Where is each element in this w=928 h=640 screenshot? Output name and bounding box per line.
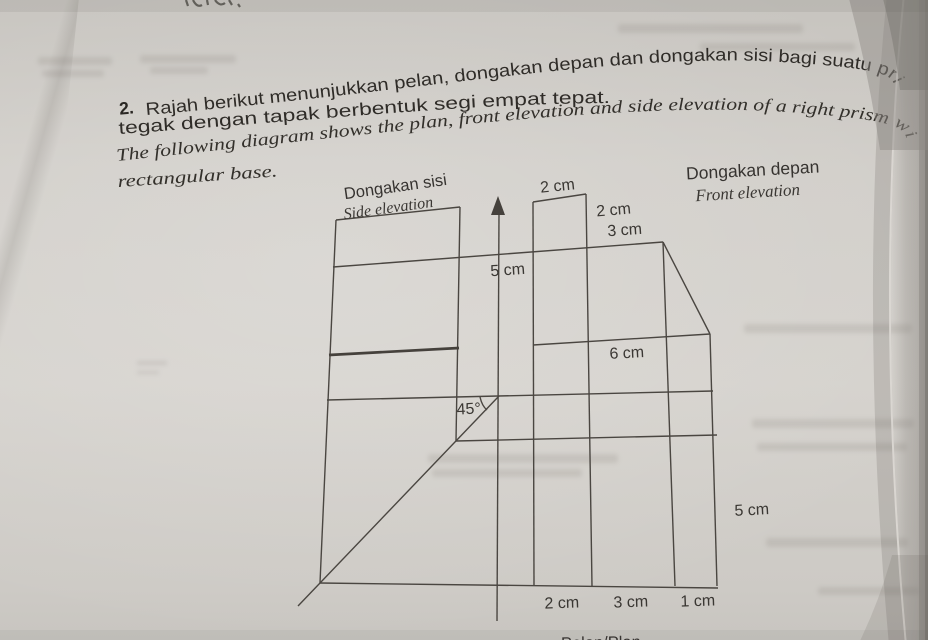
right-edge-projection-line [710, 334, 717, 586]
dim-fold-height-label: 5 cm [490, 261, 526, 280]
angle-label: 45° [456, 400, 481, 418]
tower-right-projection-line [586, 194, 592, 586]
fold-line-arrow [491, 196, 505, 621]
tower-left-projection-line [533, 202, 534, 586]
dim-plan-seg2-label: 3 cm [613, 593, 648, 611]
front-elevation-title-en: Front elevation [694, 180, 801, 205]
angle-arc [480, 397, 487, 410]
side-bottom-edge [329, 348, 459, 355]
front-slope-edge [663, 242, 710, 334]
front-elevation-title-my: Dongakan depan [686, 157, 820, 184]
page-svg: 2. Rajah berikut menunjukkan pelan, dong… [0, 0, 928, 640]
textbook-page-photo: 2. Rajah berikut menunjukkan pelan, dong… [0, 0, 928, 640]
plan-bottom-edge [320, 583, 718, 588]
plan-top-edge [456, 435, 717, 441]
dim-tower-width-label: 2 cm [539, 176, 575, 197]
xy-line [327, 391, 713, 400]
orthographic-diagram: Dongakan sisi Side elevation Dongakan de… [298, 157, 820, 640]
arrow-up-icon [491, 196, 505, 215]
question-text-english-2: rectangular base. [117, 160, 278, 191]
front-elevation-view [533, 194, 717, 586]
six-cm-level-line [533, 334, 710, 345]
plan-view [320, 435, 718, 588]
dim-plan-depth-label: 5 cm [734, 501, 770, 520]
shoulder-end-projection-line [663, 242, 675, 586]
side-left-edge-projection-line [320, 220, 336, 583]
dim-shoulder-label: 3 cm [607, 221, 643, 240]
question-number: 2. [118, 97, 134, 118]
dim-tower-height-label: 2 cm [596, 201, 632, 221]
dim-plan-seg3-label: 1 cm [680, 592, 715, 610]
dim-body-width-label: 6 cm [609, 344, 645, 363]
dim-plan-seg1-label: 2 cm [544, 594, 579, 612]
transfer-45-line [298, 396, 499, 606]
side-elevation-view [320, 207, 460, 583]
